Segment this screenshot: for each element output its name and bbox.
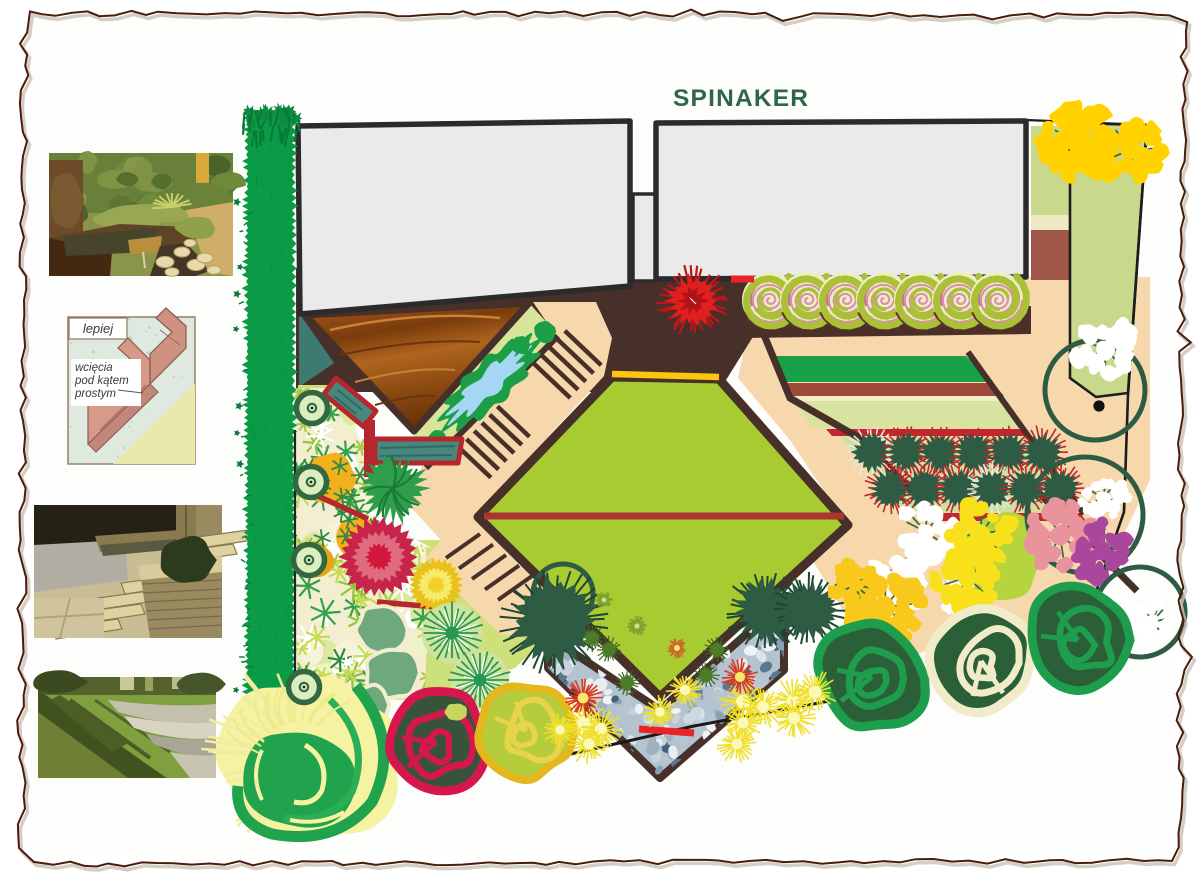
svg-text:SPINAKER: SPINAKER — [673, 85, 809, 112]
svg-text:wcięcia: wcięcia — [75, 362, 113, 374]
svg-text:prostym: prostym — [74, 388, 116, 400]
svg-text:lepiej: lepiej — [83, 321, 114, 336]
svg-text:pod kątem: pod kątem — [74, 375, 129, 387]
